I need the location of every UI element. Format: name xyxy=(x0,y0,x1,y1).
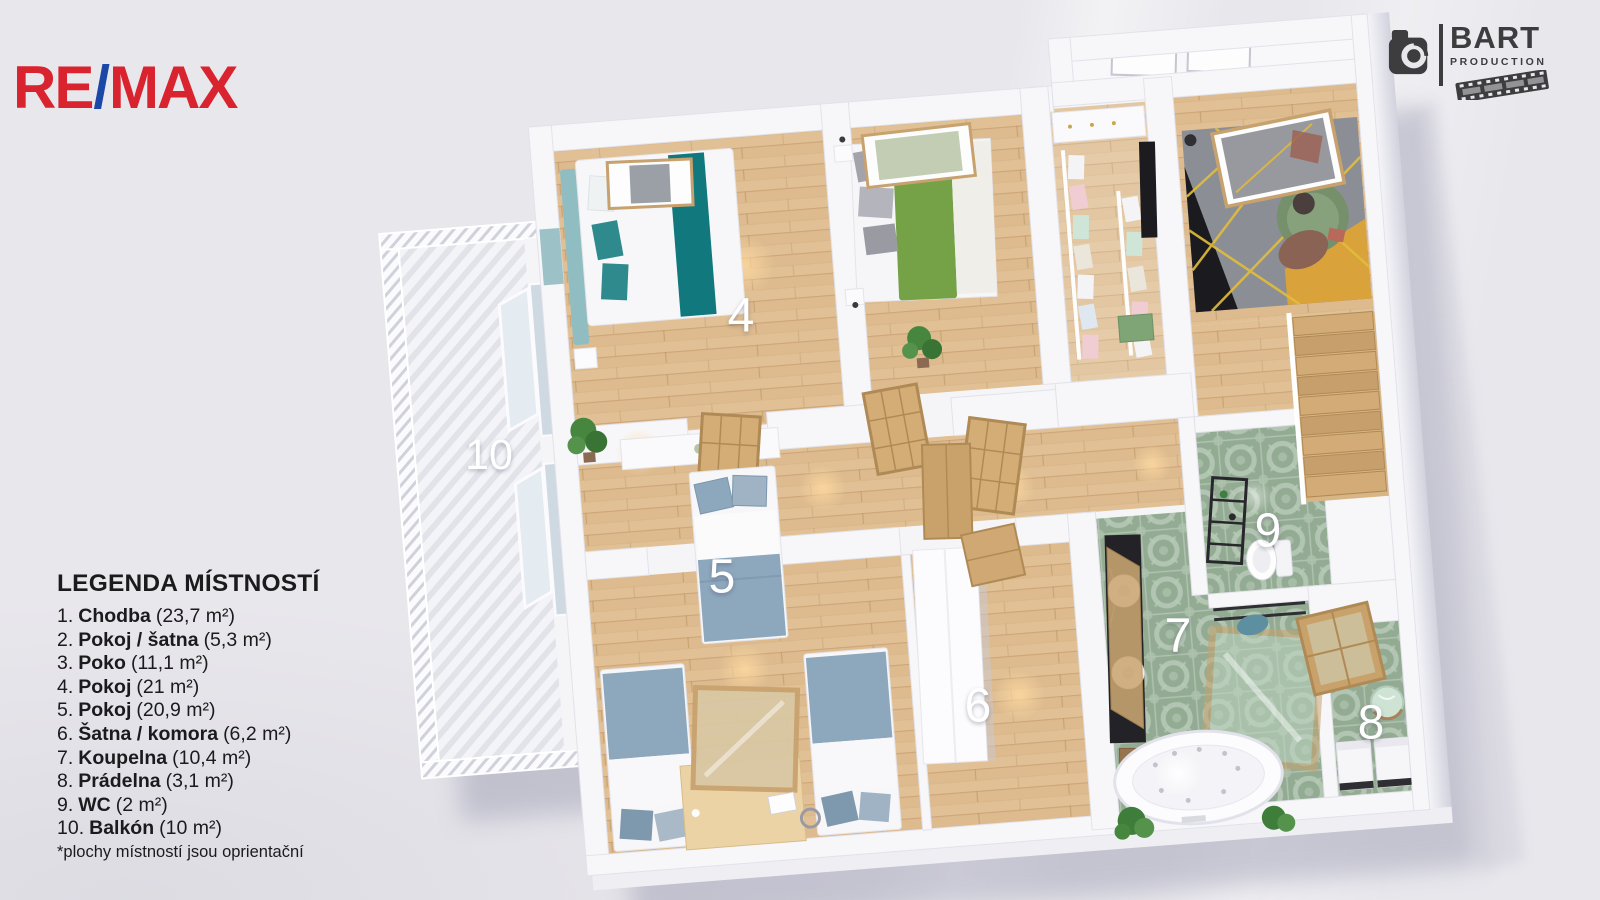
room-label-6: 6 xyxy=(965,680,992,733)
room-label-9: 9 xyxy=(1255,505,1282,558)
bart-production-logo: BART PRODUCTION xyxy=(1387,22,1550,100)
single-bed xyxy=(804,648,902,836)
single-bed xyxy=(600,664,698,852)
legend-item-3: 3.Poko(11,1 m²) xyxy=(57,652,319,676)
landing-floor xyxy=(1191,318,1298,417)
legend-item-4: 4.Pokoj(21 m²) xyxy=(57,676,319,700)
room-label-4: 4 xyxy=(728,290,755,343)
camera-icon xyxy=(1387,22,1433,84)
remax-logo-slash: / xyxy=(92,54,109,121)
green-dresser xyxy=(1118,314,1154,343)
entry-hall xyxy=(1181,108,1371,312)
film-strip-icon xyxy=(1454,70,1550,100)
pillow xyxy=(858,186,894,218)
blanket xyxy=(603,668,690,760)
remax-logo-re: RE xyxy=(13,54,92,121)
staircase xyxy=(1286,306,1389,504)
legend-item-2: 2.Pokoj / šatna(5,3 m²) xyxy=(57,629,319,653)
legend-item-5: 5.Pokoj(20,9 m²) xyxy=(57,699,319,723)
legend-item-7: 7.Koupelna(10,4 m²) xyxy=(57,747,319,771)
remax-logo: RE/MAX xyxy=(13,58,236,118)
tv-frame xyxy=(607,159,693,209)
pillow xyxy=(601,263,629,300)
blanket xyxy=(806,652,893,744)
mirror-panel xyxy=(1139,141,1158,237)
pillow xyxy=(732,475,767,506)
legend-item-9: 9.WC(2 m²) xyxy=(57,794,319,818)
nightstand xyxy=(574,347,598,369)
leaning-mirror xyxy=(1107,546,1144,729)
wood-cabinet xyxy=(922,444,972,539)
legend-footnote: *plochy místností jsou oprientační xyxy=(57,843,319,862)
stair-steps xyxy=(1293,311,1387,497)
wood-cabinet xyxy=(961,524,1025,586)
legend-item-10: 10.Balkón(10 m²) xyxy=(57,817,319,841)
bart-logo-name: BART xyxy=(1450,22,1540,53)
legend-title: LEGENDA MÍSTNOSTÍ xyxy=(57,570,319,598)
pillow xyxy=(859,792,891,822)
legend: LEGENDA MÍSTNOSTÍ 1.Chodba(23,7 m²) 2.Po… xyxy=(57,570,319,862)
apartment-plan xyxy=(368,10,1481,900)
room-label-7: 7 xyxy=(1165,610,1192,663)
logo-divider xyxy=(1439,24,1443,86)
pillow xyxy=(863,223,898,255)
legend-item-8: 8.Prádelna(3,1 m²) xyxy=(57,770,319,794)
vanity-sinks xyxy=(1105,534,1146,743)
single-bed xyxy=(689,466,788,644)
leaning-mirror xyxy=(693,688,798,791)
bart-logo-subtitle: PRODUCTION xyxy=(1450,56,1547,68)
room-label-10: 10 xyxy=(465,431,513,479)
room-label-8: 8 xyxy=(1358,697,1385,750)
nightstand xyxy=(834,145,853,162)
legend-item-6: 6.Šatna / komora(6,2 m²) xyxy=(57,723,319,747)
remax-logo-max: MAX xyxy=(109,54,236,121)
wall-frame xyxy=(862,124,975,188)
legend-item-1: 1.Chodba(23,7 m²) xyxy=(57,605,319,629)
room-label-5: 5 xyxy=(709,551,736,604)
pillow xyxy=(620,809,654,841)
